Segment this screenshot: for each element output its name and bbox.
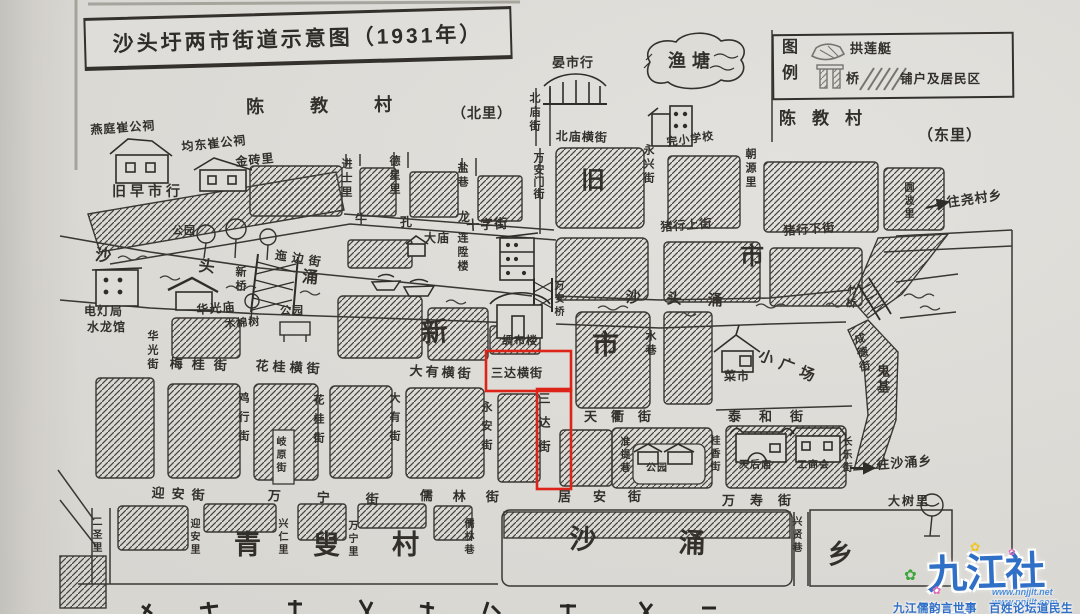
label-dexing-li: 德星里 [388,155,399,197]
label-park-mid: 公园 [280,306,304,317]
label-chamber-of-commerce: 工商会 [797,461,830,471]
label-new-market-char1: 新 [420,318,449,347]
label-guixiang-street: 桂香街 [708,435,718,474]
label-zhunti-alley: 准提巷 [618,436,628,475]
label-yuanbo-li: 圆波里 [902,182,912,221]
label-dayou-street: 大有街 [388,392,399,449]
pink-flower-icon: ✿ [932,586,941,597]
label-yingan-street: 迎安街 [151,486,212,502]
yellow-flower-icon: ✿ [970,541,980,553]
label-guiji: 鬼基 [876,364,889,396]
label-qiyuan-street: 岐原街 [274,436,284,475]
tianhou-temple-building [730,428,794,462]
label-zhu-bridge: 竹桥 [842,284,856,311]
label-yingan-li: 迎安里 [188,518,198,557]
caishi-market-building [714,325,760,372]
electric-office-building [92,268,142,306]
label-xingxian-alley: 兴贤巷 [790,516,800,555]
label-rulin-street: 儒林街 [420,489,519,504]
label-sanda-street: 三达街 [538,392,550,464]
label-to-shayong: 往沙涌乡 [876,454,933,471]
label-caishi: 菜市 [724,370,750,382]
label-wananmen-street: 万安门街 [532,152,543,200]
label-ersheng-li: 二圣里 [90,516,100,555]
hand-drawn-street-map-1931: 沙头圩两市街道示意图（1931年） 图 例 拱莲艇 桥 铺户及居民区 陈教村 （… [0,0,1080,614]
label-huaguang-temple: 华光庙 [196,301,236,316]
label-xingren-li: 兴仁里 [276,518,286,557]
legend-li: 例 [782,66,799,82]
label-rulin-alley: 儒林巷 [462,518,472,557]
label-yongan-street: 永安街 [480,401,491,458]
label-juan-street: 居安街 [558,490,663,503]
label-huagui-cross-street: 花桂横街 [255,359,324,376]
label-old-market-char2: 市 [740,245,764,269]
label-electric-office: 电灯局 [84,305,123,317]
watermark-url-net: www.nnjjlt.net [992,587,1053,597]
label-sanda-cross-street: 三达横街 [491,367,543,379]
label-choubu-tower: 绸布楼 [502,336,538,347]
label-tianqu-street: 天衢街 [584,410,665,423]
label-changle-street: 长乐街 [840,436,850,475]
label-park-bottom: 公园 [646,464,668,474]
label-beimiao-cross-street: 北庙横街 [556,130,608,144]
label-dayou-cross-street: 大有横街 [409,364,474,380]
label-zhuhang-upper-street: 猪行上街 [660,217,713,233]
label-old-market-char1: 旧 [581,169,605,193]
label-fire-station: 水龙馆 [87,321,126,333]
watermark-tagline: 九江儒韵言世事 百姓论坛道民生 [893,600,1073,614]
label-shizi-street: 十字街 [466,217,509,232]
legend-box [772,32,1015,101]
legend-hatch-label: 铺户及居民区 [900,73,981,86]
label-huagui-street: 花桂街 [312,394,323,451]
label-shui-alley: 水巷 [644,330,655,358]
label-xiang: 乡 [826,539,856,568]
label-niu: 牛 [355,213,368,225]
map-title: 沙头圩两市街道示意图（1931年） [112,18,483,58]
label-liansheng-tower: 连陞楼 [456,232,467,274]
label-beimiao-street: 北庙街 [528,92,539,134]
label-zhuhang-lower-street: 猪行下街 [783,221,836,237]
legend-tu: 图 [782,40,799,56]
label-wanshou-street: 万寿街 [722,494,806,507]
label-chenjiao-north-li: （北里） [452,106,512,120]
yanting-ancestral-hall [110,139,172,183]
label-tianhou-temple: 天后庙 [739,461,772,471]
legend-boat-label: 拱莲艇 [850,42,892,55]
label-fish-pond: 渔塘 [668,52,716,70]
label-wanning-li: 万宁里 [346,520,356,559]
cut-off-handwriting [142,600,716,614]
label-chenjiao-village-east: 陈教村 [779,110,878,127]
label-yongxing-street: 永兴街 [642,144,653,186]
pink-flower-small-icon: ✿ [1008,548,1016,557]
label-kong: 孔 [400,216,413,228]
liansheng-tower [496,233,538,280]
legend-bridge-label: 桥 [846,72,860,85]
label-new-market-char2: 市 [592,332,619,359]
label-yan-alley: 盐巷 [456,162,467,190]
yanshihang-market-building [543,74,607,104]
label-damiao: 大庙 [424,232,450,244]
label-chenjiao-village-north: 陈教村 [246,95,438,116]
label-old-morning-market: 旧早市行 [112,184,184,198]
label-park-top: 公园 [172,226,196,237]
park-stage [280,322,310,335]
label-shatou-chong-east: 沙头涌 [625,290,748,309]
label-yanshihang: 晏市行 [552,56,594,69]
label-huaguang-street: 华光街 [146,330,157,372]
label-taihe-street: 泰和街 [728,410,821,423]
choubu-tower-building [490,293,550,338]
label-chenjiao-east-li: （东里） [918,128,982,143]
label-chaoyuan-li: 朝源里 [744,148,755,190]
label-jihang-street: 鸡行街 [237,392,248,449]
green-flower-icon: ✿ [904,568,917,583]
label-wanan-bridge: 万安桥 [552,280,562,319]
label-jinshi-li: 进士里 [340,158,351,200]
label-dashu-li: 大树里 [888,495,930,507]
label-meigui-street: 梅桂街 [170,357,236,372]
